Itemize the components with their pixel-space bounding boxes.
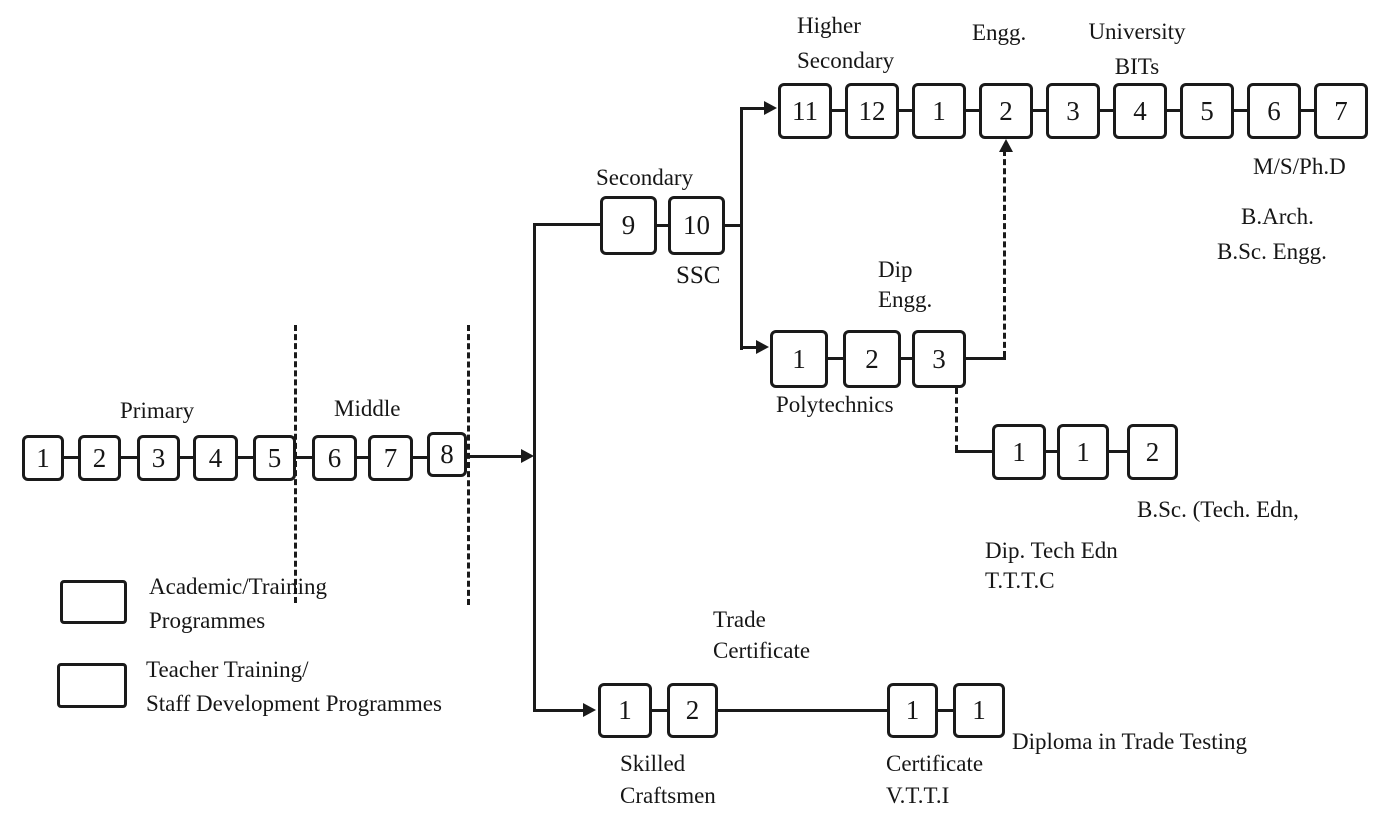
- dip-engg-label: Dip Engg.: [878, 255, 932, 315]
- teacher-training-dashed-line: [955, 388, 958, 451]
- connector-line: [1301, 109, 1314, 112]
- dip-tech-edn-label-line1: Dip. Tech Edn: [985, 536, 1118, 566]
- branch-line: [467, 455, 525, 458]
- trade-certificate-label-line2: Certificate: [713, 635, 810, 666]
- dip-tech-edn-label: Dip. Tech Edn T.T.T.C: [985, 536, 1118, 596]
- connector-line: [357, 456, 368, 459]
- branch-line: [718, 709, 887, 712]
- higher-secondary-box-12: 12: [845, 83, 899, 139]
- connector-line: [1234, 109, 1247, 112]
- stage-divider-dashed-line: [467, 325, 470, 605]
- craftsmen-box-1: 1: [598, 683, 652, 738]
- middle-label: Middle: [334, 393, 400, 425]
- university-box-1: 1: [912, 83, 966, 139]
- legend-teacher-training-label-line1: Teacher Training/: [146, 653, 442, 687]
- diploma-trade-testing-label: Diploma in Trade Testing: [1012, 726, 1247, 758]
- branch-line: [533, 223, 600, 226]
- primary-box-5: 5: [253, 435, 296, 481]
- certificate-vtti-label: Certificate V.T.T.I: [886, 748, 983, 812]
- secondary-box-9: 9: [600, 196, 657, 255]
- university-box-2: 2: [979, 83, 1033, 139]
- dip-engg-label-line2: Engg.: [878, 285, 932, 315]
- primary-box-3: 3: [137, 435, 180, 481]
- vtti-box-1: 1: [887, 683, 938, 738]
- polytechnic-box-3: 3: [912, 330, 966, 388]
- legend-teacher-training-box: [57, 663, 127, 708]
- vtti-box-2: 1: [953, 683, 1005, 738]
- branch-trunk-line: [740, 107, 743, 350]
- arrowhead-right-icon: [756, 340, 769, 354]
- techedn-box-3: 2: [1127, 424, 1178, 480]
- connector-line: [1167, 109, 1180, 112]
- techedn-box-1: 1: [992, 424, 1046, 480]
- higher-secondary-label: Higher Secondary: [797, 8, 894, 78]
- primary-box-2: 2: [78, 435, 121, 481]
- arrowhead-right-icon: [764, 101, 777, 115]
- branch-line: [966, 357, 1006, 360]
- barch-label: B.Arch.: [1241, 201, 1314, 233]
- legend-teacher-training-label: Teacher Training/ Staff Development Prog…: [146, 653, 442, 721]
- branch-line: [740, 107, 766, 110]
- connector-line: [657, 224, 668, 227]
- skilled-craftsmen-label: Skilled Craftsmen: [620, 748, 716, 812]
- university-label-line2: BITs: [1076, 49, 1198, 84]
- trade-certificate-label-line1: Trade: [713, 604, 810, 635]
- connector-line: [121, 456, 137, 459]
- higher-secondary-label-line1: Higher: [797, 8, 894, 43]
- bsc-tech-edn-label: B.Sc. (Tech. Edn,: [1137, 494, 1299, 526]
- university-label-line1: University: [1076, 14, 1198, 49]
- branch-line: [533, 709, 584, 712]
- engg-label: Engg.: [972, 17, 1026, 49]
- primary-label: Primary: [120, 395, 194, 427]
- lateral-entry-dashed-line: [1003, 150, 1006, 357]
- connector-line: [1033, 109, 1046, 112]
- primary-box-1: 1: [22, 435, 64, 481]
- university-box-6: 6: [1247, 83, 1301, 139]
- branch-line: [955, 450, 992, 453]
- connector-line: [966, 109, 979, 112]
- legend-academic-label-line2: Programmes: [149, 604, 327, 638]
- connector-line: [1109, 450, 1127, 453]
- connector-line: [64, 456, 78, 459]
- education-system-flowchart: 1 2 3 4 5 6 7 8 Primary Middle 9 10 Seco…: [0, 0, 1382, 828]
- craftsmen-box-2: 2: [667, 683, 718, 738]
- university-bits-label: University BITs: [1076, 14, 1198, 84]
- connector-line: [1100, 109, 1113, 112]
- polytechnic-box-2: 2: [843, 330, 901, 388]
- connector-line: [901, 357, 912, 360]
- ms-phd-label: M/S/Ph.D: [1253, 151, 1346, 183]
- legend-academic-label: Academic/Training Programmes: [149, 570, 327, 638]
- polytechnic-box-1: 1: [770, 330, 828, 388]
- higher-secondary-box-11: 11: [778, 83, 832, 139]
- ssc-label: SSC: [676, 260, 720, 292]
- dip-engg-label-line1: Dip: [878, 255, 932, 285]
- middle-box-7: 7: [368, 435, 413, 481]
- connector-line: [180, 456, 193, 459]
- legend-teacher-training-label-line2: Staff Development Programmes: [146, 687, 442, 721]
- trade-certificate-label: Trade Certificate: [713, 604, 810, 666]
- higher-secondary-label-line2: Secondary: [797, 43, 894, 78]
- university-box-5: 5: [1180, 83, 1234, 139]
- bsc-engg-label: B.Sc. Engg.: [1217, 236, 1327, 268]
- secondary-box-10: 10: [668, 196, 725, 255]
- connector-line: [652, 709, 667, 712]
- arrowhead-right-icon: [583, 703, 596, 717]
- connector-line: [238, 456, 253, 459]
- tttc-label-line2: T.T.T.C: [985, 566, 1118, 596]
- middle-box-6: 6: [312, 435, 357, 481]
- university-box-4: 4: [1113, 83, 1167, 139]
- connector-line: [296, 456, 312, 459]
- middle-box-8: 8: [427, 432, 467, 477]
- connector-line: [899, 109, 912, 112]
- stage-divider-dashed-line: [294, 325, 297, 603]
- connector-line: [938, 709, 953, 712]
- arrowhead-up-icon: [999, 139, 1013, 152]
- connector-line: [832, 109, 845, 112]
- secondary-label: Secondary: [596, 162, 693, 194]
- legend-academic-box: [60, 580, 127, 624]
- skilled-craftsmen-label-line2: Craftsmen: [620, 780, 716, 812]
- connector-line: [828, 357, 843, 360]
- polytechnics-label: Polytechnics: [776, 389, 894, 421]
- connector-line: [1046, 450, 1057, 453]
- university-box-3: 3: [1046, 83, 1100, 139]
- legend-academic-label-line1: Academic/Training: [149, 570, 327, 604]
- certificate-vtti-label-line2: V.T.T.I: [886, 780, 983, 812]
- skilled-craftsmen-label-line1: Skilled: [620, 748, 716, 780]
- branch-trunk-line: [533, 223, 536, 712]
- techedn-box-2: 1: [1057, 424, 1109, 480]
- certificate-vtti-label-line1: Certificate: [886, 748, 983, 780]
- connector-line: [413, 456, 427, 459]
- university-box-7: 7: [1314, 83, 1368, 139]
- primary-box-4: 4: [193, 435, 238, 481]
